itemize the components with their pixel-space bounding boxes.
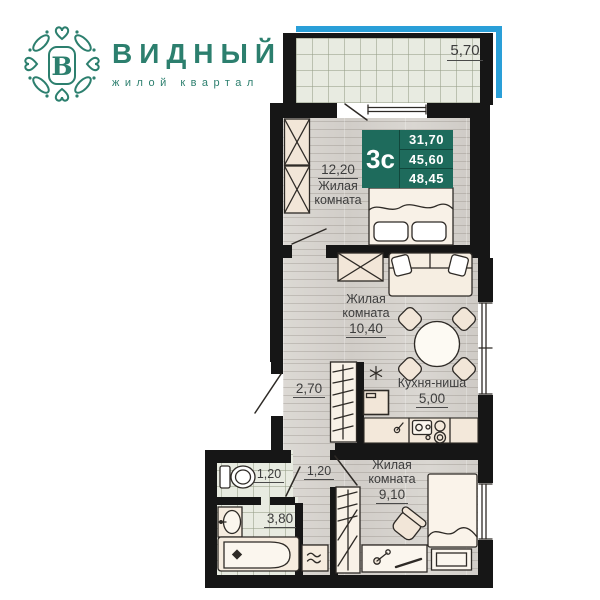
wall-segment [283,33,296,105]
floor-bathroom [205,497,298,577]
brand-name: ВИДНЫЙ [112,40,282,68]
label-room2: Жилая комната 10,40 [330,292,402,338]
wall-segment [478,460,493,483]
label-wc: 1,20 [247,465,291,483]
wall-segment [270,258,283,362]
wall-segment [271,360,283,374]
wall-segment [205,450,217,577]
label-balcony: 5,70 [437,42,493,61]
balcony-accent-line-right [496,26,502,98]
wall-segment [270,103,283,260]
room3-area: 9,10 [376,487,408,504]
brand-tagline: жилой квартал [112,77,282,89]
wall-segment [205,575,492,588]
wall-segment [283,103,337,118]
label-kitchen: Кухня-ниша 5,00 [384,376,480,408]
label-room3: Жилая комната 9,10 [356,458,428,504]
wall-segment [283,33,493,38]
wall-segment [326,245,490,258]
wall-segment [283,245,292,258]
hall-area: 2,70 [293,381,325,398]
balcony-accent-line-top [296,26,502,32]
kitchen-area: 5,00 [416,391,448,408]
bathroom-area: 3,80 [264,511,296,528]
wall-segment [270,497,295,505]
kitchen-name: Кухня-ниша [384,376,480,390]
label-corridor: 1,20 [297,462,341,480]
apartment-info-badge: 3с 31,70 45,60 48,45 [362,130,453,188]
brand-monogram: В [51,52,72,81]
label-room1: 12,20 Жилая комната [302,161,374,207]
room1-name: Жилая комната [302,179,374,207]
floorplan-page: В ВИДНЫЙ жилой квартал [0,0,600,600]
area-total: 48,45 [400,168,453,188]
brand-logo: В ВИДНЫЙ жилой квартал [20,22,282,106]
wall-segment [478,540,493,588]
wall-segment [357,362,364,443]
brand-emblem-icon: В [20,22,104,106]
room1-area: 12,20 [318,162,358,179]
room2-name: Жилая комната [330,292,402,320]
window-room3 [478,483,493,540]
wall-segment [217,497,261,505]
balcony-area: 5,70 [447,42,482,61]
label-hall: 2,70 [284,380,334,398]
room3-name: Жилая комната [356,458,428,486]
wall-segment [205,450,291,463]
corridor-area: 1,20 [304,464,334,480]
wall-segment [427,103,490,118]
wc-area: 1,20 [254,467,284,483]
wall-segment [330,487,338,577]
wall-segment [330,450,338,460]
label-bathroom: 3,80 [256,510,304,528]
wall-segment [470,118,490,245]
balcony-door-window-opening [337,104,427,117]
room2-area: 10,40 [346,321,386,338]
window-room2 [478,302,493,395]
area-living: 31,70 [400,130,453,149]
area-apartment: 45,60 [400,149,453,169]
wall-segment [478,258,493,302]
